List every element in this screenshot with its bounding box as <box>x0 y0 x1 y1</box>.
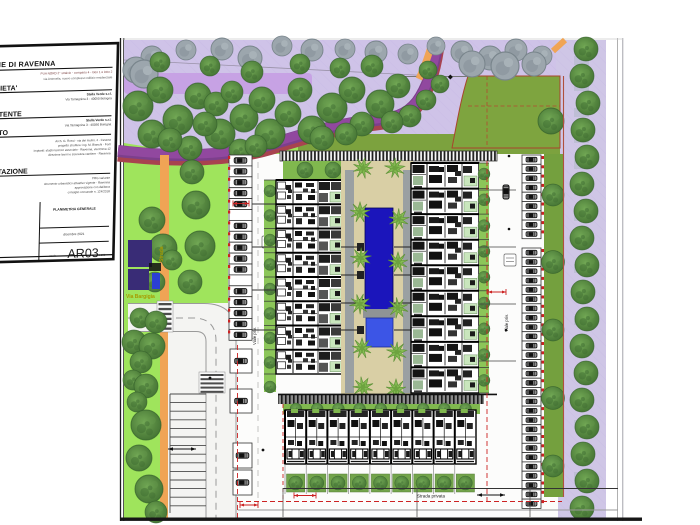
svg-text:dicembre 2021: dicembre 2021 <box>63 232 84 237</box>
svg-text:Via Bargigia: Via Bargigia <box>126 294 155 300</box>
svg-text:AR03: AR03 <box>67 246 99 261</box>
svg-text:RIETA': RIETA' <box>0 85 18 93</box>
svg-text:Strada: Strada <box>159 246 165 262</box>
svg-text:TTO: TTO <box>0 130 9 137</box>
svg-text:Strada privata: Strada privata <box>417 494 446 499</box>
svg-text:NE DI RAVENNA: NE DI RAVENNA <box>0 59 56 70</box>
